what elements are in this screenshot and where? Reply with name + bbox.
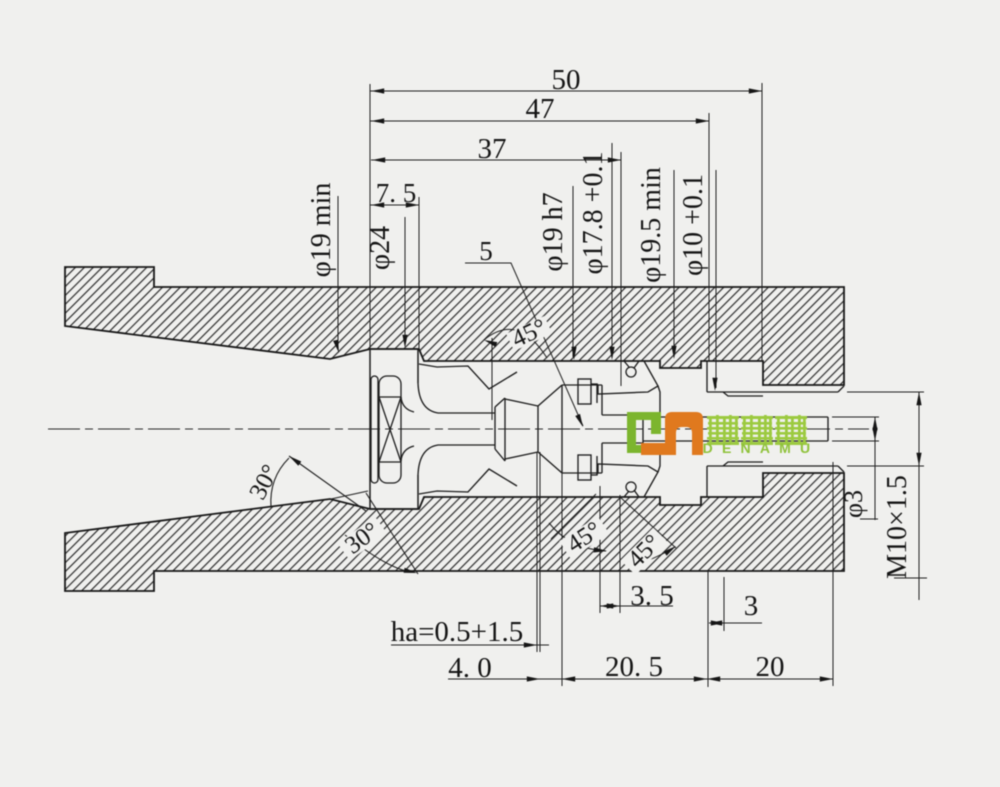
svg-text:φ19 min: φ19 min: [306, 183, 337, 278]
svg-text:φ19 h7: φ19 h7: [538, 192, 569, 271]
svg-text:3: 3: [744, 590, 759, 622]
svg-text:DENAMU: DENAMU: [703, 440, 820, 456]
svg-text:7. 5: 7. 5: [376, 178, 417, 208]
svg-text:47: 47: [526, 93, 555, 125]
svg-text:φ19.5 min: φ19.5 min: [636, 167, 667, 283]
svg-text:3. 5: 3. 5: [630, 580, 674, 612]
svg-text:φ17.8 +0.1: φ17.8 +0.1: [578, 152, 609, 275]
svg-text:37: 37: [478, 133, 507, 165]
svg-text:ha=0.5+1.5: ha=0.5+1.5: [391, 616, 524, 648]
svg-text:4. 0: 4. 0: [448, 652, 492, 684]
svg-text:φ3: φ3: [839, 490, 868, 518]
svg-text:φ10 +0.1: φ10 +0.1: [678, 174, 709, 276]
svg-text:20. 5: 20. 5: [605, 651, 663, 683]
svg-text:20: 20: [756, 651, 785, 683]
svg-text:φ24: φ24: [365, 226, 396, 270]
svg-text:M10×1.5: M10×1.5: [882, 475, 913, 579]
svg-text:5: 5: [479, 236, 493, 266]
svg-text:50: 50: [552, 64, 581, 96]
